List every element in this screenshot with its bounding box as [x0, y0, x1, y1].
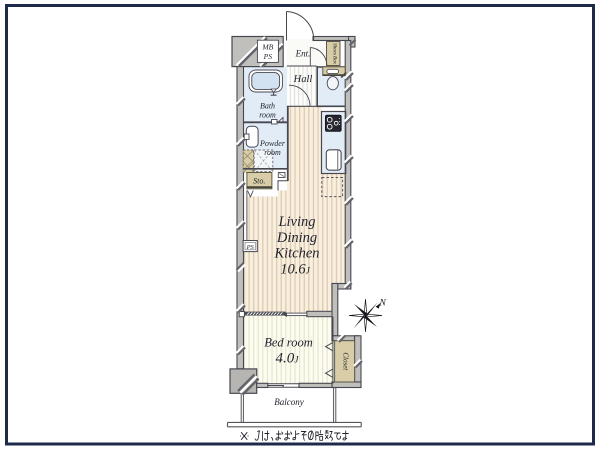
svg-text:Ent.: Ent. [295, 49, 311, 59]
svg-text:Sto.: Sto. [253, 177, 265, 186]
svg-text:Powder: Powder [259, 139, 286, 148]
svg-text:MB: MB [261, 43, 273, 52]
svg-text:Balcony: Balcony [274, 397, 304, 407]
svg-text:room: room [259, 111, 276, 120]
svg-text:Closet: Closet [342, 352, 350, 371]
svg-text:Hall: Hall [293, 74, 313, 85]
svg-text:N: N [379, 299, 387, 309]
svg-text:Kitchen: Kitchen [273, 246, 319, 262]
svg-text:PS: PS [263, 52, 273, 61]
svg-text:room: room [264, 148, 281, 157]
svg-text:Living: Living [277, 214, 315, 230]
svg-text:PS: PS [246, 244, 255, 251]
svg-text:Bath: Bath [260, 102, 275, 111]
svg-text:Bed room: Bed room [264, 336, 313, 350]
svg-text:Dining: Dining [276, 230, 317, 246]
svg-text:Shoes Box: Shoes Box [332, 43, 337, 64]
